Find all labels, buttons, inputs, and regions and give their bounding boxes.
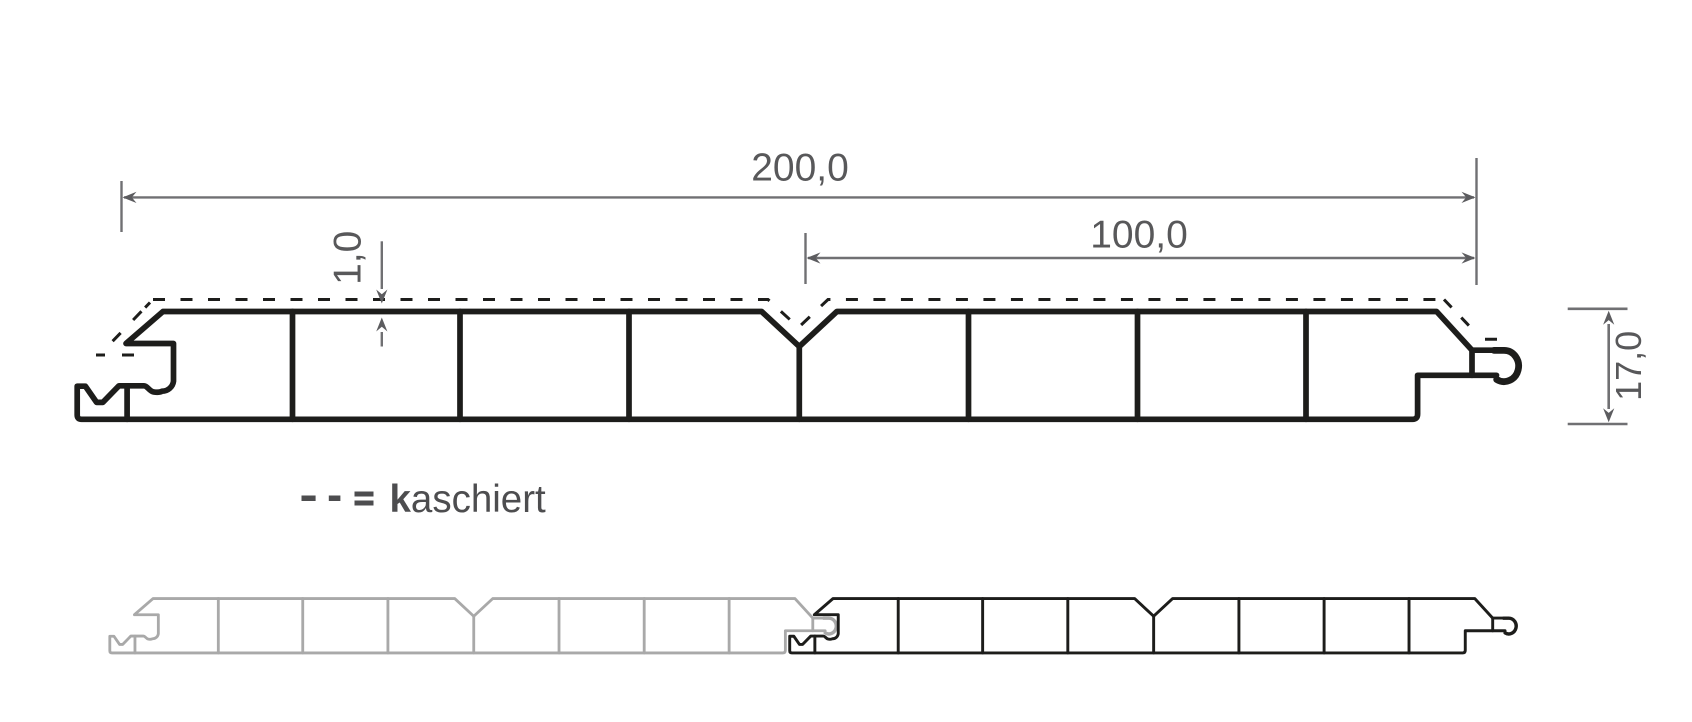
- svg-text:kaschiert: kaschiert: [390, 478, 547, 521]
- svg-text:200,0: 200,0: [751, 147, 849, 190]
- svg-text:17,0: 17,0: [1608, 331, 1649, 401]
- svg-text:1,0: 1,0: [327, 231, 370, 285]
- svg-text:100,0: 100,0: [1090, 214, 1188, 257]
